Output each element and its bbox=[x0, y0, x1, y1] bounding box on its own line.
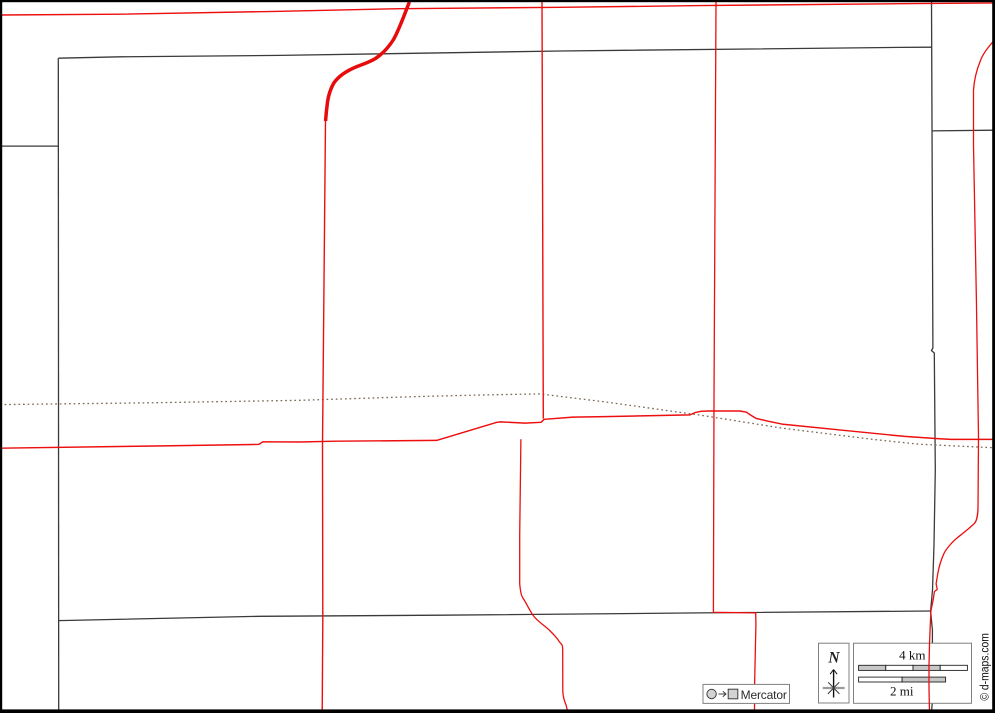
svg-text:2 mi: 2 mi bbox=[890, 683, 914, 698]
svg-text:4 km: 4 km bbox=[899, 648, 925, 663]
svg-text:© d-maps.com: © d-maps.com bbox=[978, 633, 992, 701]
svg-text:N: N bbox=[827, 650, 840, 667]
svg-text:Mercator: Mercator bbox=[741, 688, 787, 702]
